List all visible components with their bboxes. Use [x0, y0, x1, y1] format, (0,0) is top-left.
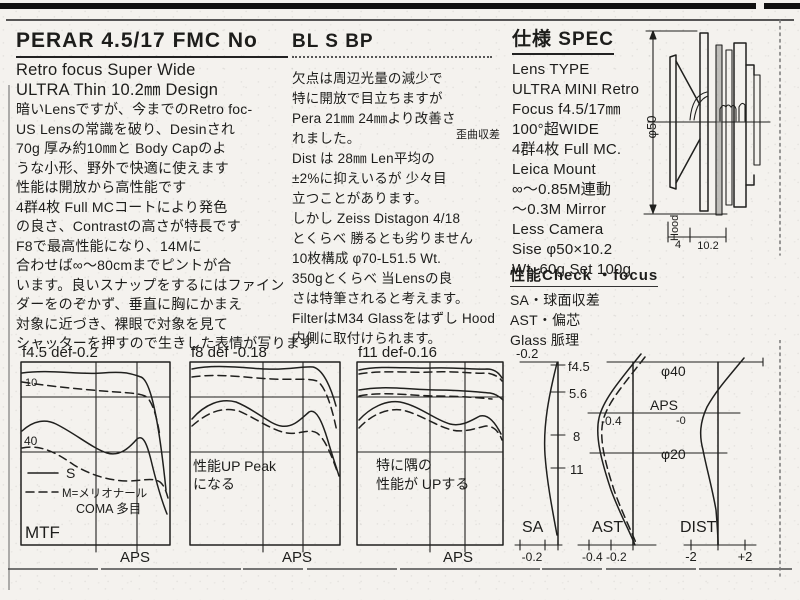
text-line: 350gとくらべ 当Lensの良 — [292, 269, 506, 289]
lens-cross-section-diagram: φ50 Hood 4 10.2 — [642, 15, 800, 265]
lens-outline — [648, 33, 770, 215]
section-title-spec: 仕様 SPEC — [512, 28, 614, 55]
text-line: 10枚構成 φ70-L51.5 Wt. — [292, 249, 506, 269]
sa-name-label: SA — [522, 519, 544, 536]
sa-top-scale-label: -0.2 — [516, 346, 538, 361]
x-axis-label-aps: APS — [282, 549, 312, 566]
performance-check-section: 性能Check ・focus SA・球面収差 AST・偏芯 Glass 脈理 — [510, 266, 700, 350]
hood-depth-label: 4 — [675, 239, 681, 251]
text-line: 特に開放で目立ちますが — [292, 89, 506, 109]
aperture-11-label: 11 — [570, 462, 584, 477]
text-line: います。良いスナップをするにはファイン — [16, 276, 288, 296]
x-axis-label-aps: APS — [120, 549, 150, 566]
mtf-chart-f45-title: f4.5 def-0.2 — [22, 344, 98, 361]
text-line: しかし Zeiss Distagon 4/18 — [292, 209, 506, 229]
left-column: PERAR 4.5/17 FMC No Retro focus Super Wi… — [16, 28, 288, 354]
f8-note-line2: になる — [193, 476, 235, 492]
text-line: FilterはM34 Glassをはずし Hood — [292, 309, 506, 329]
freq-10-label: 10 — [25, 377, 37, 389]
ast-diagram: -0.4 AST -0.4 -0.2 — [578, 354, 656, 564]
scanned-lens-spec-sheet: PERAR 4.5/17 FMC No Retro focus Super Wi… — [0, 0, 800, 600]
ast-04-label: -0.4 — [601, 414, 622, 428]
text-line: さは特筆されると考えます。 — [292, 289, 506, 309]
text-line: うな小形、野外で快適に使えます — [16, 159, 288, 179]
dist-d20-label: φ20 — [661, 446, 686, 462]
check-line: SA・球面収差 — [510, 290, 700, 310]
middle-column: BL S BP 欠点は周辺光量の減少で 特に開放で目立ちますが Pera 21㎜… — [292, 30, 506, 349]
lens-depth-label: 10.2 — [697, 240, 718, 252]
text-line: 合わせば∞〜80cmまでピントが合 — [16, 256, 288, 276]
mtf-chart-f8-title: f8 def -0.18 — [191, 344, 267, 361]
dist-name-label: DIST — [680, 519, 717, 536]
dist-d40-label: φ40 — [661, 363, 686, 379]
f8-note-line1: 性能UP Peak — [193, 458, 277, 474]
dist-minus0-label: -0 — [676, 415, 686, 427]
f11-note-line1: 特に隅の — [376, 457, 432, 473]
mtf-chart-f8: f8 def -0.18 性能UP Peak になる APS — [190, 344, 340, 566]
mtf-chart-f45: f4.5 def-0.2 10 40 S M=メリオナール COMA 多目 MT… — [21, 344, 170, 566]
text-line: の良さ、Contrastの高さが特長です — [16, 217, 288, 237]
aperture-56-label: 5.6 — [569, 386, 587, 401]
legend-m-label: M=メリオナール — [62, 487, 147, 500]
text-line: 対象に近づき、裸眼で対象を見て — [16, 315, 288, 335]
text-line: ダーをのぞかず、垂直に胸にかまえ — [16, 295, 288, 315]
text-line: 立つことがあります。 — [292, 189, 506, 209]
distortion-annotation: 歪曲収差 — [456, 125, 500, 145]
diameter-label: φ50 — [644, 116, 659, 139]
mtf-label: MTF — [25, 523, 60, 542]
text-line: Retro focus Super Wide — [16, 61, 288, 81]
text-line: 性能は開放から高性能です — [16, 178, 288, 198]
text-line: 70g 厚み約10㎜と Body Capのよ — [16, 139, 288, 159]
text-line: US Lensの常識を破り、Desinされ — [16, 120, 288, 140]
text-line: ±2%に抑えいるが 少々目 — [292, 169, 506, 189]
mtf-chart-f11-title: f11 def-0.16 — [358, 344, 437, 361]
dist-neg-scale-label: -2 — [685, 549, 697, 564]
mtf-and-aberration-charts: f4.5 def-0.2 10 40 S M=メリオナール COMA 多目 MT… — [0, 340, 800, 600]
coma-note: COMA 多目 — [76, 502, 141, 516]
top-black-bar — [0, 3, 756, 9]
top-black-bar-right — [764, 3, 800, 9]
freq-40-label: 40 — [24, 434, 38, 448]
text-line: 欠点は周辺光量の減少で — [292, 69, 506, 89]
text-line-part: れました。 — [292, 131, 361, 146]
text-line: Dist は 28㎜ Len平均の — [292, 149, 506, 169]
f11-note-line2: 性能が UPする — [376, 476, 469, 492]
ast-bottom-scale-label: -0.4 -0.2 — [582, 550, 627, 564]
aperture-8-label: 8 — [573, 429, 580, 444]
sa-diagram: -0.2 f4.5 5.6 8 11 SA -0.2 — [515, 346, 590, 564]
aperture-f45-label: f4.5 — [568, 359, 590, 374]
ast-name-label: AST — [592, 519, 623, 536]
text-line: 4群4枚 Full MCコートにより発色 — [16, 198, 288, 218]
section-title-blsbp: BL S BP — [292, 30, 492, 58]
mtf-chart-f11: f11 def-0.16 特に隅の 性能が UPする APS — [357, 344, 503, 566]
sa-bottom-scale-label: -0.2 — [522, 550, 543, 564]
dist-aps-label: APS — [650, 397, 678, 413]
x-axis-label-aps: APS — [443, 549, 473, 566]
text-line: とくらべ 勝るとも劣りません — [292, 229, 506, 249]
check-line: AST・偏芯 — [510, 310, 700, 330]
text-line: れました。 歪曲収差 — [292, 129, 506, 149]
page-title: PERAR 4.5/17 FMC No — [16, 28, 288, 58]
dist-pos-scale-label: +2 — [738, 549, 753, 564]
legend-s-label: S — [66, 465, 75, 481]
text-line: ULTRA Thin 10.2㎜ Design — [16, 81, 288, 101]
text-line: 暗いLensですが、今までのRetro foc- — [16, 100, 288, 120]
section-title-check: 性能Check ・focus — [510, 266, 658, 287]
text-line: F8で最高性能になり、14Mに — [16, 237, 288, 257]
